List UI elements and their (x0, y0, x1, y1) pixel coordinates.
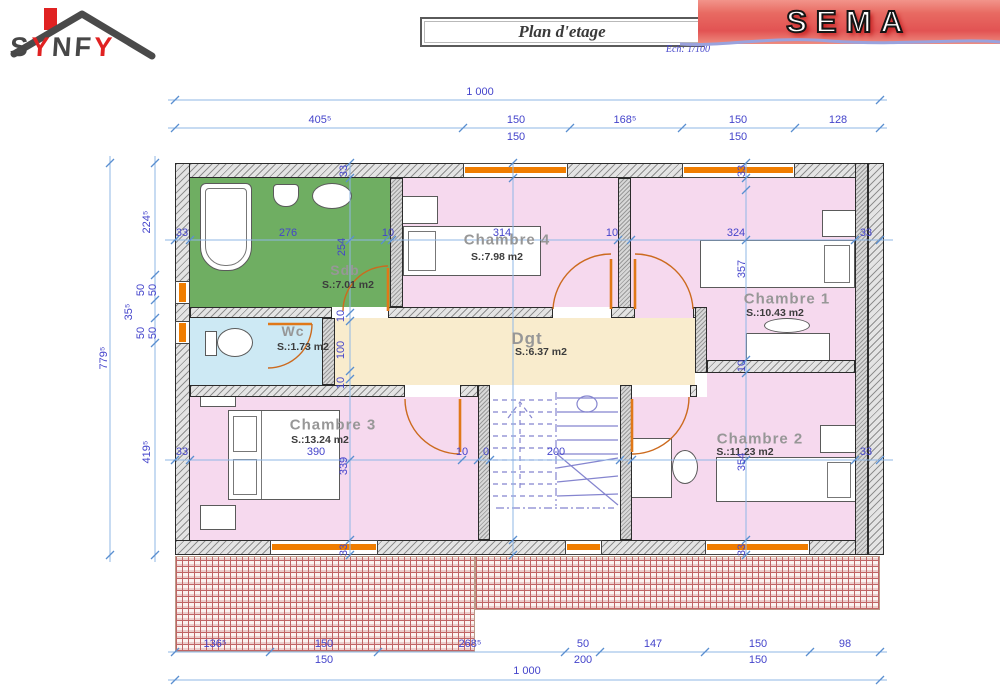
dimension-label: 50 (577, 638, 589, 650)
dimension-label: 339 (338, 457, 350, 475)
dimension-label: 33 (176, 446, 188, 458)
dimension-label: 150 (749, 638, 767, 650)
dimension-label: 50 (135, 284, 147, 296)
dimension-label: 390 (307, 446, 325, 458)
dimension-label: 150 (507, 131, 525, 143)
dimension-label: 419⁵ (141, 441, 153, 464)
dimension-label: 405⁵ (309, 114, 332, 126)
room-area-chambre3: S.:13.24 m2 (291, 434, 349, 446)
dimension-label: 150 (729, 131, 747, 143)
dimension-label: 200 (547, 446, 565, 458)
dimension-label: 0 (483, 446, 489, 458)
room-label-chambre3: Chambre 3 (290, 417, 377, 434)
dimension-label: 10 (335, 310, 347, 322)
dimension-label: 33 (736, 165, 748, 177)
dimension-ticks (106, 96, 884, 684)
dimension-label: 33 (736, 544, 748, 556)
dimension-label: 10 (335, 377, 347, 389)
dimension-label: 50 (147, 327, 159, 339)
room-area-chambre1: S.:10.43 m2 (746, 307, 804, 319)
room-label-wc: Wc (282, 323, 305, 339)
dimension-label: 268⁵ (459, 638, 482, 650)
dimension-label: 779⁵ (98, 347, 110, 370)
dimension-label: 254 (336, 238, 348, 256)
dimension-label: 10 (736, 360, 748, 372)
room-label-chambre2: Chambre 2 (717, 431, 804, 448)
room-area-sdb: S.:7.01 m2 (322, 279, 374, 291)
plan-overlay (0, 0, 1000, 700)
room-area-chambre4: S.:7.98 m2 (471, 251, 523, 263)
dimension-label: 354 (736, 453, 748, 471)
floor-plan-page: SYNFY Plan d'etage Ech: 1/100 SEMA (0, 0, 1000, 700)
dimension-label: 324 (727, 227, 745, 239)
dimension-label: 33 (860, 446, 872, 458)
dimension-label: 33 (176, 227, 188, 239)
room-area-wc: S.:1.73 m2 (277, 341, 329, 353)
dimension-label: 224⁵ (141, 211, 153, 234)
dimension-label: 1 000 (466, 86, 494, 98)
dimension-label: 276 (279, 227, 297, 239)
dimension-label: 50 (147, 284, 159, 296)
dimension-label: 10 (456, 446, 468, 458)
dimension-label: 50 (135, 327, 147, 339)
dimension-label: 150 (749, 654, 767, 666)
dimension-label: 1 000 (513, 665, 541, 677)
dimension-label: 35⁵ (123, 304, 135, 321)
dimension-label: 33 (338, 165, 350, 177)
dimension-label: 100 (335, 341, 347, 359)
dimension-label: 10 (382, 227, 394, 239)
dimension-label: 150 (507, 114, 525, 126)
room-label-sdb: Sdb (330, 262, 359, 278)
dimension-label: 357 (736, 260, 748, 278)
dimension-label: 200 (574, 654, 592, 666)
dimension-label: 147 (644, 638, 662, 650)
dimension-label: 136⁵ (204, 638, 227, 650)
dimension-label: 98 (839, 638, 851, 650)
dimension-label: 150 (315, 654, 333, 666)
dimension-label: 128 (829, 114, 847, 126)
dimension-label: 33 (860, 227, 872, 239)
dimension-label: 33 (338, 544, 350, 556)
dimension-label: 150 (729, 114, 747, 126)
room-label-chambre1: Chambre 1 (744, 291, 831, 308)
dimension-lines (110, 100, 893, 680)
dimension-label: 168⁵ (614, 114, 637, 126)
dimension-label: 314 (493, 227, 511, 239)
room-area-dgt: S.:6.37 m2 (515, 346, 567, 358)
dimension-label: 10 (606, 227, 618, 239)
dimension-label: 150 (315, 638, 333, 650)
